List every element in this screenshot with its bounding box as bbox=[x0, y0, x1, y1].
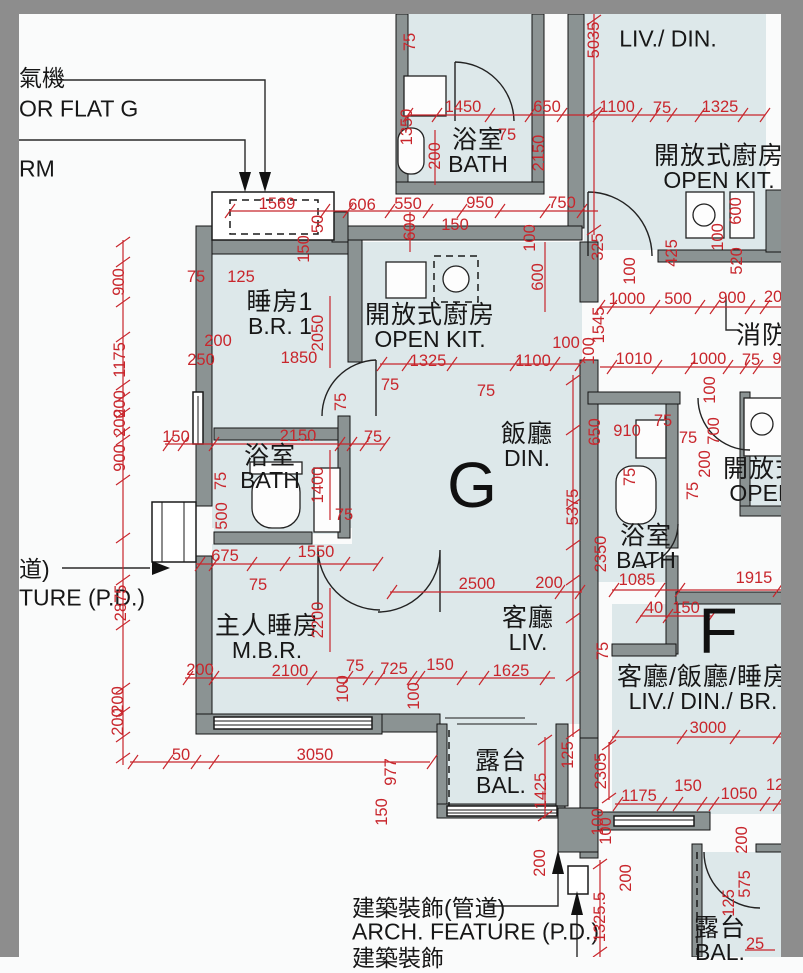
dim-label: 910 bbox=[613, 423, 641, 440]
dim-label: 75 bbox=[402, 33, 419, 51]
dim-label: 20 bbox=[764, 289, 782, 306]
dim-label: 1100 bbox=[515, 353, 550, 370]
dim-label: 1850 bbox=[281, 350, 318, 367]
dim-label: 1175 bbox=[621, 788, 656, 805]
dim-label: 200 bbox=[618, 864, 635, 892]
dim-label: 600 bbox=[402, 213, 419, 241]
dim-label: 75 bbox=[622, 468, 639, 486]
dim-label: 50 bbox=[310, 215, 327, 233]
dim-label: 325 bbox=[590, 233, 607, 261]
dim-label: 40 bbox=[645, 600, 663, 617]
dim-label: 100 bbox=[335, 675, 352, 703]
dim-label: 1400 bbox=[310, 467, 327, 504]
dim-label: 520 bbox=[729, 247, 746, 275]
dim-label: 75 bbox=[346, 658, 364, 675]
top-border bbox=[0, 0, 803, 14]
dim-label: 500 bbox=[214, 502, 231, 530]
dim-label: 150 bbox=[374, 798, 391, 826]
dim-label: 650 bbox=[533, 99, 561, 116]
dim-label: 3000 bbox=[690, 720, 727, 737]
dim-label: 500 bbox=[664, 291, 692, 308]
dim-label: 75 bbox=[653, 100, 671, 117]
dim-label: 150 bbox=[441, 217, 469, 234]
dim-label: 150 bbox=[426, 657, 454, 674]
dim-label: 100 bbox=[522, 224, 539, 252]
dim-label: 1175 bbox=[112, 342, 129, 377]
dim-label: 75 bbox=[249, 577, 267, 594]
dim-label: 1425 bbox=[533, 773, 550, 810]
dim-label: 75 bbox=[333, 393, 350, 411]
dim-label: 100 bbox=[710, 223, 727, 251]
dim-label: 75 bbox=[477, 383, 495, 400]
dim-label: 200 bbox=[427, 142, 444, 170]
dim-label: 100 bbox=[552, 335, 580, 352]
dim-label: 125 bbox=[227, 269, 255, 286]
dim-label: 1000 bbox=[609, 291, 646, 308]
dim-label: 75 bbox=[595, 642, 612, 660]
dim-label: 1325.5 bbox=[592, 892, 609, 942]
dim-label: 200 bbox=[734, 826, 751, 854]
dim-label: 725 bbox=[380, 661, 408, 678]
dim-label: 425 bbox=[664, 239, 681, 267]
dim-label: 1915 bbox=[736, 570, 773, 587]
dim-label: 125 bbox=[721, 889, 738, 917]
dim-label: 2875 bbox=[113, 585, 130, 622]
dim-label: 3050 bbox=[297, 747, 334, 764]
dim-label: 2305 bbox=[593, 753, 610, 790]
dim-label: 100 bbox=[598, 817, 615, 845]
dim-label: 75 bbox=[364, 429, 382, 446]
dim-label: 75 bbox=[187, 269, 205, 286]
dim-label: 1050 bbox=[721, 786, 758, 803]
dim-label: 2050 bbox=[310, 315, 327, 352]
dim-label: 2350 bbox=[593, 536, 610, 573]
dim-label: 2150 bbox=[280, 428, 317, 445]
dim-label: 75 bbox=[742, 352, 760, 369]
dim-label: 1350 bbox=[399, 109, 416, 146]
dim-label: 977 bbox=[383, 758, 400, 786]
dim-label: 675 bbox=[211, 548, 239, 565]
dim-label: 1000 bbox=[690, 351, 727, 368]
dim-label: 75 bbox=[498, 127, 516, 144]
dim-label: 75 bbox=[654, 413, 672, 430]
dim-label: 5035 bbox=[586, 22, 603, 59]
dim-label: 5375 bbox=[565, 489, 582, 526]
dimension-labels: 7550351450650110075132513502007521501569… bbox=[0, 0, 803, 957]
dim-label: 900 bbox=[112, 444, 129, 472]
dim-label: 1550 bbox=[298, 544, 335, 561]
dim-label: 950 bbox=[466, 195, 494, 212]
dim-label: 1569 bbox=[259, 196, 296, 213]
dim-label: 900 bbox=[111, 268, 128, 296]
dim-label: 150 bbox=[674, 778, 702, 795]
dim-label: 1010 bbox=[616, 351, 653, 368]
dim-label: 75 bbox=[381, 377, 399, 394]
dim-label: 200 bbox=[535, 575, 563, 592]
dim-label: 700 bbox=[706, 417, 723, 445]
dim-label: 250 bbox=[187, 352, 215, 369]
dim-label: 125 bbox=[560, 741, 577, 769]
dim-label: 75 bbox=[679, 430, 697, 447]
dim-label: 1625 bbox=[493, 663, 530, 680]
right-border bbox=[781, 0, 803, 957]
floor-plan: 睡房1 B.R. 1 開放式廚房 OPEN KIT. 浴室 BATH 飯廳 DI… bbox=[0, 0, 803, 957]
dim-label: 150 bbox=[672, 600, 700, 617]
dim-label: 75 bbox=[213, 472, 230, 490]
dim-label: 600 bbox=[530, 263, 547, 291]
dim-label: 750 bbox=[548, 195, 576, 212]
dim-label: 150 bbox=[296, 235, 313, 263]
dim-label: 200 bbox=[204, 333, 232, 350]
dim-label: 1085 bbox=[619, 572, 656, 589]
dim-label: 200 bbox=[532, 849, 549, 877]
dim-label: 2200 bbox=[310, 602, 327, 639]
dim-label: 606 bbox=[348, 197, 376, 214]
dim-label: 25 bbox=[746, 936, 764, 953]
dim-label: 50 bbox=[172, 747, 190, 764]
dim-label: 75 bbox=[335, 507, 353, 524]
dim-label: 150 bbox=[162, 429, 190, 446]
dim-label: 650 bbox=[587, 418, 604, 446]
dim-label: 200 bbox=[697, 450, 714, 478]
dim-label: 200 bbox=[112, 409, 129, 437]
dim-label: 100 bbox=[581, 337, 598, 365]
dim-label: 1325 bbox=[410, 353, 447, 370]
left-border bbox=[0, 0, 19, 957]
dim-label: 575 bbox=[737, 870, 754, 898]
dim-label: 1100 bbox=[599, 99, 634, 116]
dim-label: 75 bbox=[685, 482, 702, 500]
dim-label: 550 bbox=[394, 196, 422, 213]
dim-label: 1450 bbox=[445, 99, 482, 116]
dim-label: 100 bbox=[702, 376, 719, 404]
dim-label: 2100 bbox=[272, 663, 309, 680]
dim-label: 200 bbox=[186, 662, 214, 679]
dim-label: 900 bbox=[718, 290, 746, 307]
dim-label: 2500 bbox=[459, 576, 496, 593]
dim-label: 2150 bbox=[531, 135, 548, 172]
dim-label: 600 bbox=[728, 197, 745, 225]
dim-label: 1325 bbox=[702, 99, 739, 116]
dim-label: 100 bbox=[622, 257, 639, 285]
dim-label: 200 bbox=[110, 708, 127, 736]
dim-label: 100 bbox=[406, 682, 423, 710]
